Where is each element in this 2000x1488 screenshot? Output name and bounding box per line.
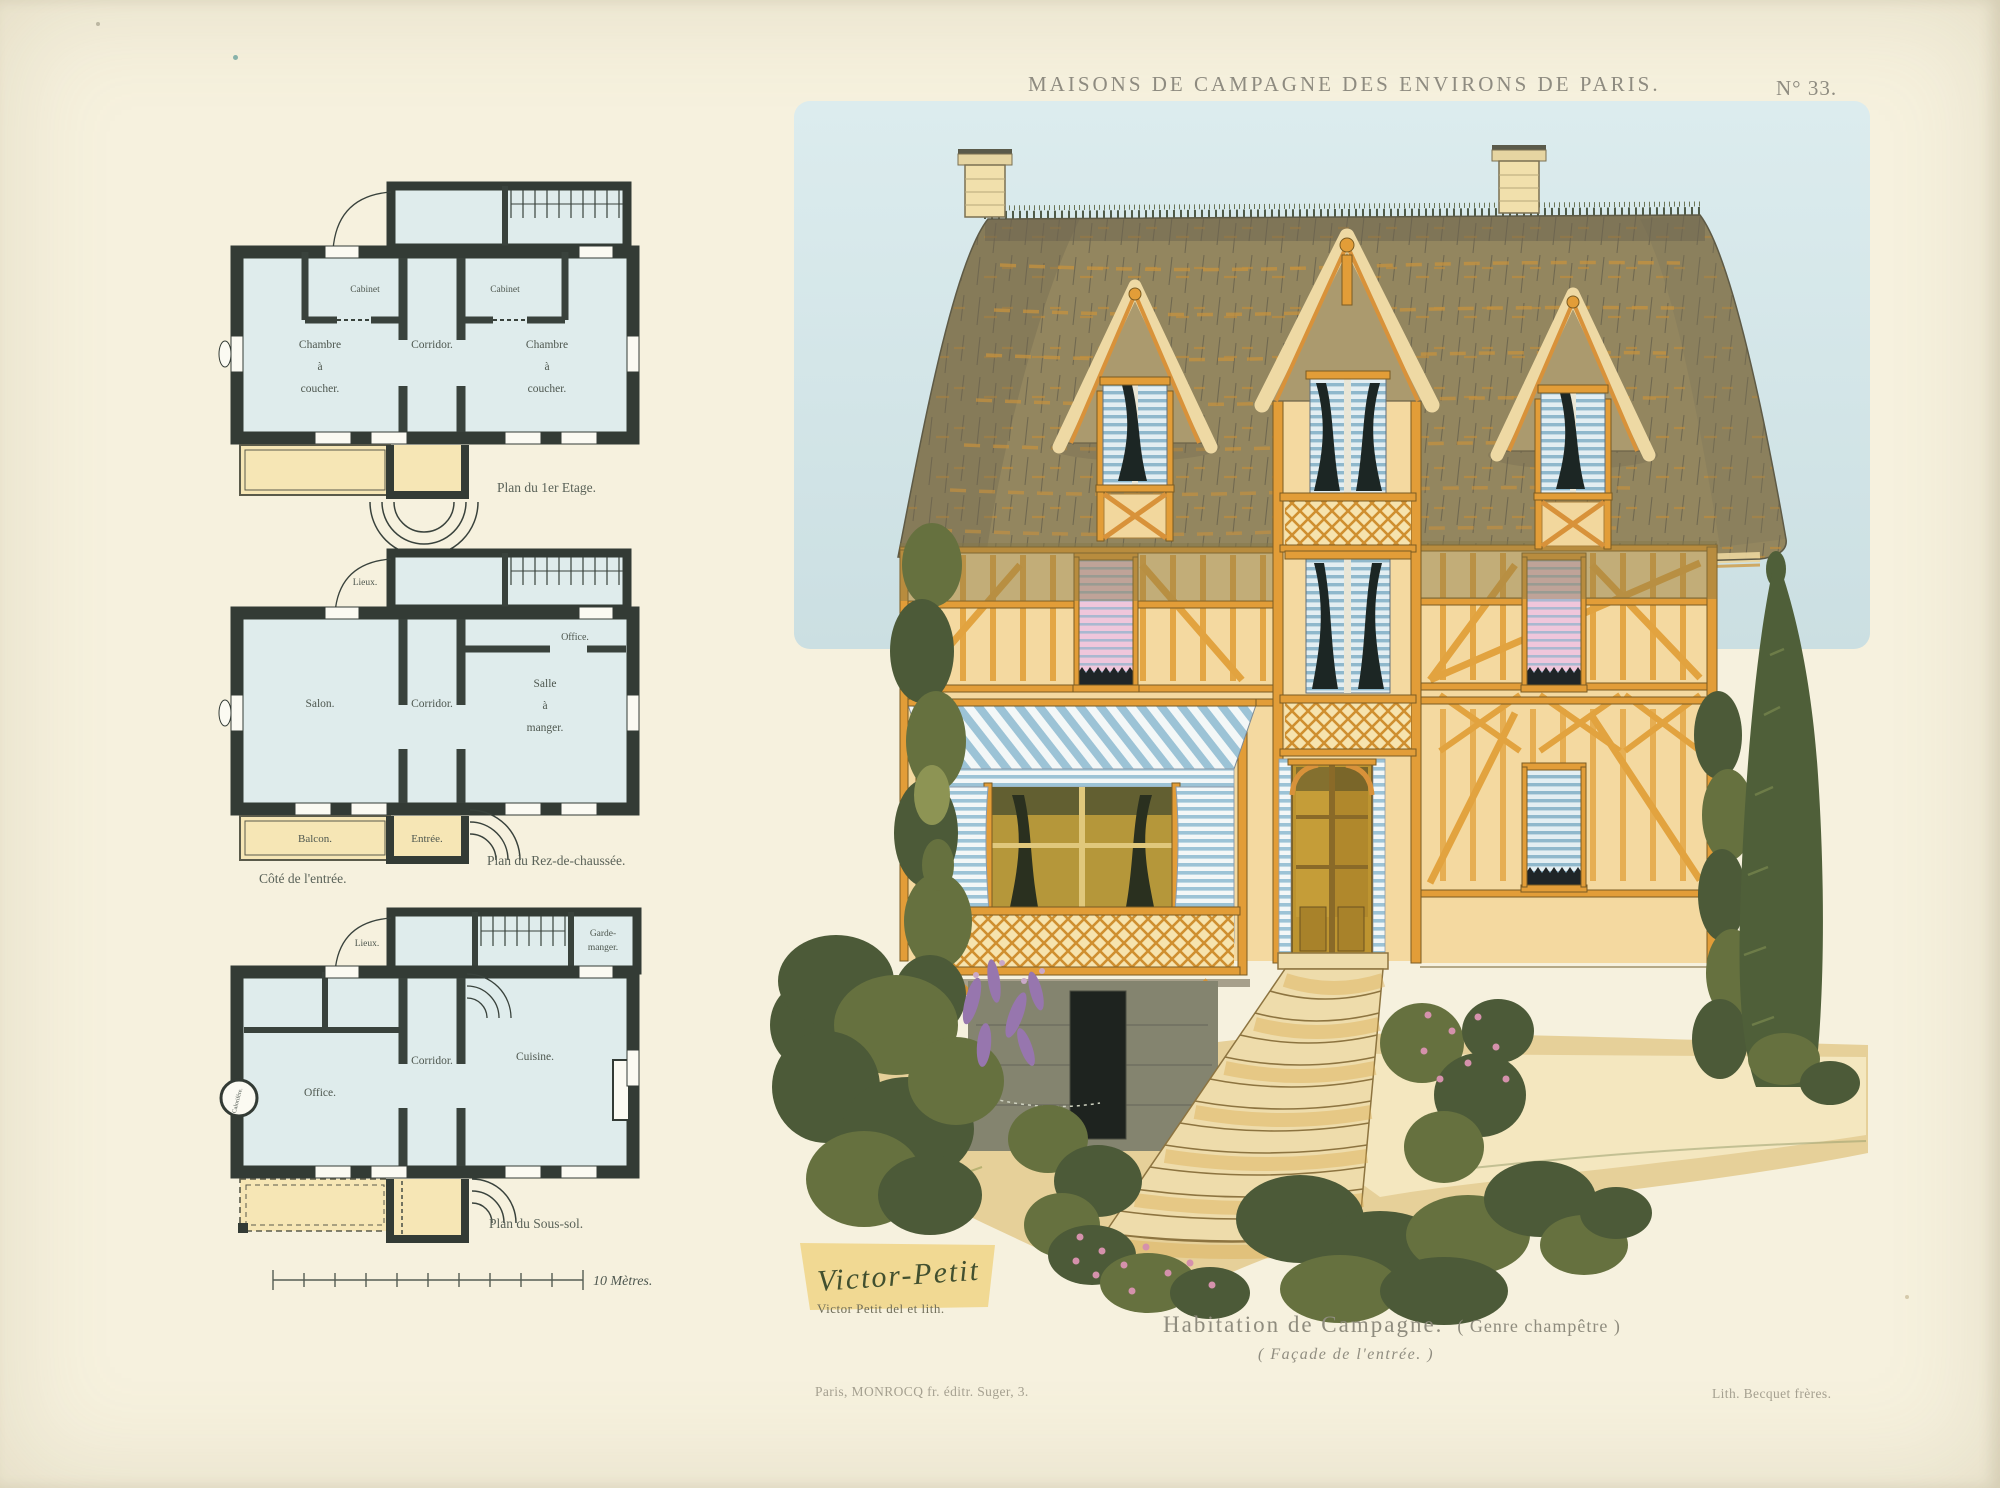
plan3-main-body: Calorifère. (221, 966, 639, 1239)
center-gable-bay (1262, 236, 1432, 963)
svg-text:Corridor.: Corridor. (411, 698, 453, 710)
svg-text:coucher.: coucher. (301, 383, 340, 395)
svg-text:Office.: Office. (561, 632, 589, 643)
caption-subtitle: ( Façade de l'entrée. ) (1258, 1346, 1434, 1364)
plan1-main-body (219, 246, 639, 556)
svg-text:Lieux.: Lieux. (353, 578, 378, 588)
svg-text:Garde-: Garde- (590, 929, 616, 939)
svg-text:manger.: manger. (527, 722, 564, 734)
scale-label: 10 Mètres. (593, 1274, 652, 1289)
svg-text:Salon.: Salon. (305, 698, 334, 710)
gable-window (1306, 371, 1390, 495)
entry-door (1279, 759, 1385, 959)
plan2-balcony-entry (240, 810, 520, 860)
svg-text:Office.: Office. (304, 1087, 336, 1099)
plan1-balcony (240, 445, 465, 495)
plate-paper: MAISONS DE CAMPAGNE DES ENVIRONS DE PARI… (0, 0, 2000, 1488)
svg-text:Chambre: Chambre (299, 339, 341, 351)
svg-text:Entrée.: Entrée. (411, 833, 443, 845)
paper-speck (1905, 1295, 1909, 1299)
svg-text:Corridor.: Corridor. (411, 339, 453, 351)
plan2-side-note: Côté de l'entrée. (259, 871, 347, 886)
plan3-stair-wing (335, 912, 637, 972)
plan1-caption: Plan du 1er Etage. (497, 480, 596, 495)
scale-bar: 10 Mètres. (265, 1255, 695, 1305)
plate-caption: Habitation de Campagne.( Genre champêtre… (1163, 1312, 1621, 1338)
paper-speck (96, 22, 100, 26)
svg-text:Cabinet: Cabinet (350, 285, 380, 295)
plate-title: MAISONS DE CAMPAGNE DES ENVIRONS DE PARI… (1028, 72, 1661, 97)
veranda-window (984, 783, 1180, 915)
svg-text:à: à (317, 361, 322, 373)
plan2-caption: Plan du Rez-de-chaussée. (487, 853, 625, 868)
chimney-right (1492, 145, 1546, 213)
caption-title: Habitation de Campagne. (1163, 1312, 1443, 1337)
svg-text:Lieux.: Lieux. (355, 939, 380, 949)
svg-text:à: à (544, 361, 549, 373)
caption-genre: ( Genre champêtre ) (1443, 1316, 1620, 1336)
plan3-caption: Plan du Sous-sol. (489, 1216, 583, 1231)
awning-valance (930, 769, 1234, 787)
plan3-calorifere: Calorifère. (221, 1080, 257, 1116)
gable-balcony-lattice (1280, 493, 1416, 552)
artist-credit: Victor Petit del et lith. (817, 1301, 945, 1317)
paper-speck (233, 55, 238, 60)
lithographer-line: Lith. Becquet frères. (1712, 1386, 1831, 1402)
svg-text:manger.: manger. (588, 943, 618, 953)
eave-shadow-right (1417, 541, 1717, 599)
svg-text:coucher.: coucher. (528, 383, 567, 395)
chimney-left (958, 149, 1012, 217)
ground-floor-window-right (1521, 763, 1587, 892)
svg-text:Chambre: Chambre (526, 339, 568, 351)
svg-text:Cabinet: Cabinet (490, 285, 520, 295)
plan-first-floor: Cabinet Cabinet Chambre à coucher. Corri… (175, 140, 645, 540)
svg-text:Corridor.: Corridor. (411, 1055, 453, 1067)
door-transom-lattice (1280, 695, 1416, 756)
basement-door (1070, 991, 1126, 1139)
svg-text:à: à (542, 700, 547, 712)
signature-area: Victor-Petit (800, 1243, 995, 1310)
facade-illustration: Victor-Petit (780, 95, 1900, 1325)
plan2-main-body (219, 607, 639, 860)
publisher-line: Paris, MONROCQ fr. éditr. Suger, 3. (815, 1384, 1029, 1400)
svg-text:Cuisine.: Cuisine. (516, 1051, 554, 1063)
plan-ground-floor: Lieux. Office. Salon. Corridor. Salle à … (175, 545, 675, 905)
plan2-stair-wing (335, 553, 627, 613)
plan1-stair-wing (333, 186, 627, 250)
svg-text:Balcon.: Balcon. (298, 833, 332, 845)
plan3-areaway (238, 1179, 516, 1239)
svg-text:Salle: Salle (534, 678, 557, 690)
